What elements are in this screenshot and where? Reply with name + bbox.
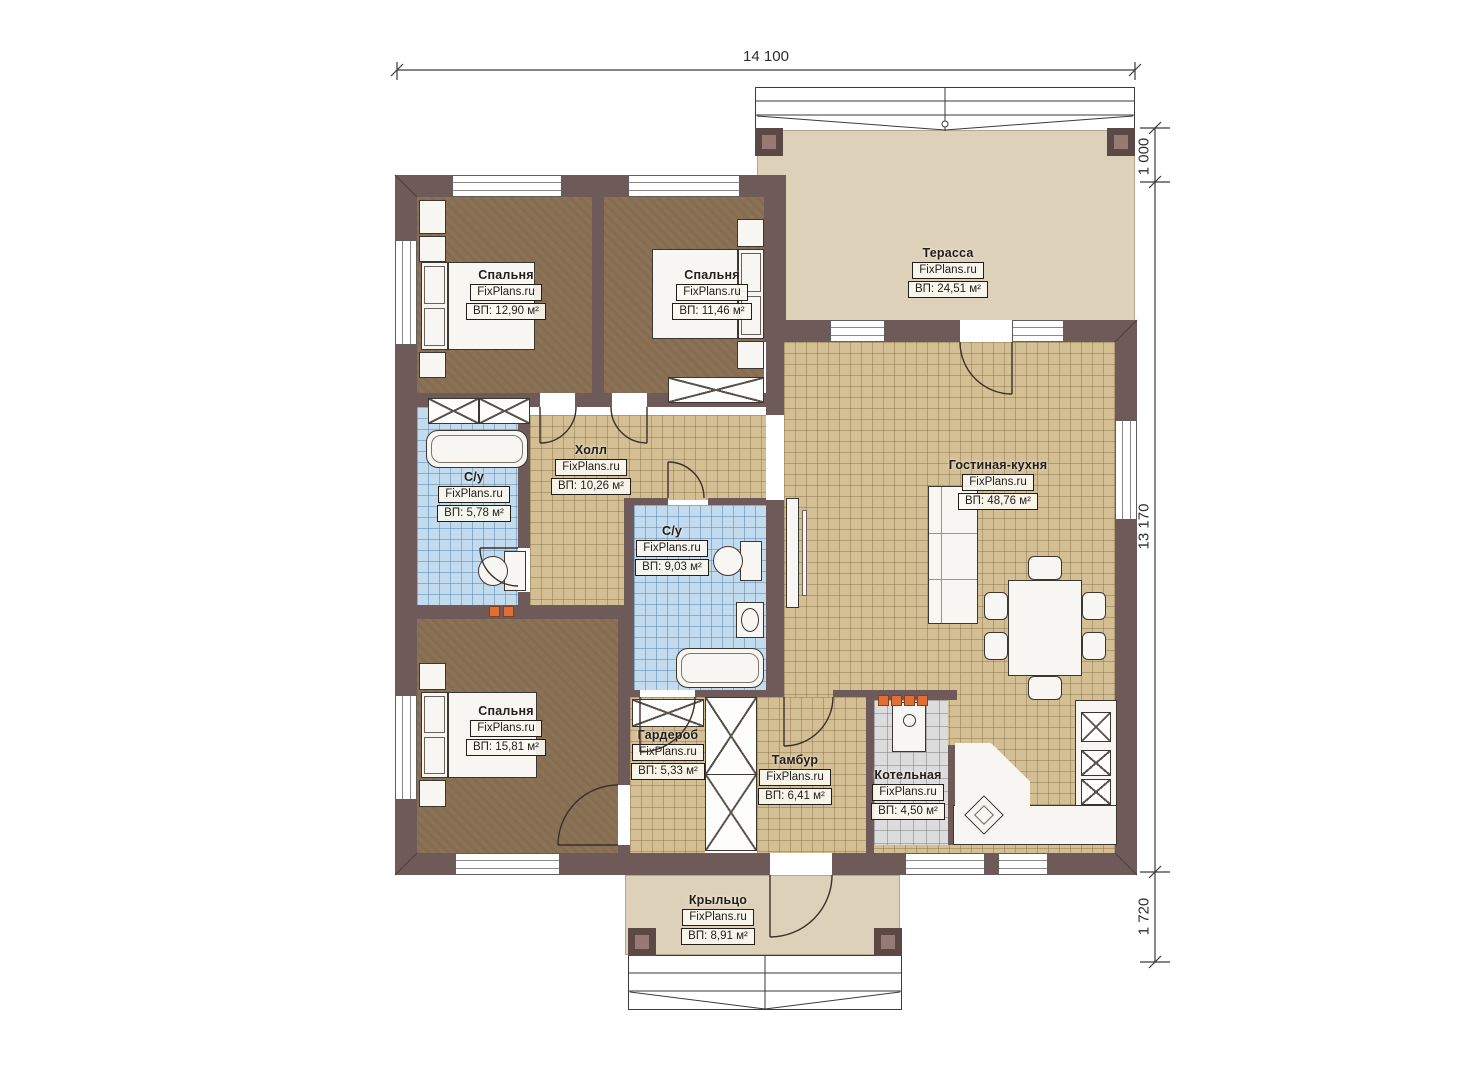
room-label-bedroom-top-left: Спальня FixPlans.ru ВП: 12,90 м²	[448, 268, 564, 320]
pillow	[424, 696, 445, 733]
brand-watermark: FixPlans.ru	[759, 769, 831, 786]
sink-basin	[741, 608, 759, 632]
nightstand	[419, 663, 446, 690]
room-name: Тамбур	[737, 753, 853, 767]
room-name: Спальня	[448, 704, 564, 718]
window	[998, 853, 1048, 875]
room-area: ВП: 5,33 м²	[631, 763, 705, 780]
brand-watermark: FixPlans.ru	[632, 744, 704, 761]
room-name: С/у	[416, 470, 532, 484]
boiler	[892, 702, 926, 752]
chair	[984, 632, 1008, 660]
room-label-bedroom-top-right: Спальня FixPlans.ru ВП: 11,46 м²	[654, 268, 770, 320]
radiator	[489, 606, 500, 617]
radiator	[891, 695, 902, 706]
room-name: Гостиная-кухня	[940, 458, 1056, 472]
wall	[766, 342, 784, 415]
wall	[618, 845, 630, 853]
nightstand	[737, 341, 764, 369]
room-area: ВП: 8,91 м²	[681, 928, 755, 945]
brand-watermark: FixPlans.ru	[555, 459, 627, 476]
boiler-burner	[903, 714, 916, 727]
tv-console	[786, 498, 799, 608]
bathtub	[426, 430, 528, 468]
room-label-bathroom-center: С/у FixPlans.ru ВП: 9,03 м²	[614, 524, 730, 576]
wall	[592, 197, 604, 393]
oven	[1081, 779, 1111, 805]
chair	[1028, 556, 1062, 580]
wall	[518, 592, 530, 605]
room-label-hall: Холл FixPlans.ru ВП: 10,26 м²	[533, 443, 649, 495]
nightstand	[419, 780, 446, 807]
floor-plan: Спальня FixPlans.ru ВП: 12,90 м² Спальня…	[0, 0, 1473, 1080]
hall-floor-lower	[530, 500, 624, 605]
window	[628, 175, 740, 197]
room-name: Спальня	[448, 268, 564, 282]
room-label-living-kitchen: Гостиная-кухня FixPlans.ru ВП: 48,76 м²	[940, 458, 1056, 510]
nightstand	[419, 236, 446, 262]
radiator	[503, 606, 514, 617]
chair	[1082, 632, 1106, 660]
terrace-canopy	[755, 87, 1135, 132]
dimension-right-lower: 1 720	[1136, 887, 1153, 947]
toilet-tank	[740, 541, 762, 581]
closet	[419, 200, 446, 234]
room-name: Котельная	[850, 768, 966, 782]
wall	[575, 393, 612, 407]
nightstand	[737, 219, 764, 247]
radiator	[917, 695, 928, 706]
window	[905, 853, 985, 875]
closet	[479, 398, 530, 424]
column-post	[874, 928, 902, 956]
bathtub	[676, 648, 764, 688]
bathtub-inner	[431, 435, 523, 463]
wardrobe-cabinet	[668, 377, 764, 403]
room-label-terrace: Терасса FixPlans.ru ВП: 24,51 м²	[890, 246, 1006, 298]
room-label-wardrobe: Гардероб FixPlans.ru ВП: 5,33 м²	[610, 728, 726, 780]
window	[452, 175, 562, 197]
pillow	[424, 737, 445, 774]
terrace-door-opening	[960, 320, 1012, 342]
wall	[764, 320, 1137, 342]
nightstand	[419, 352, 446, 378]
wall	[417, 605, 630, 619]
brand-watermark: FixPlans.ru	[636, 540, 708, 557]
kitchen-appliance	[1081, 712, 1111, 742]
window	[455, 853, 560, 875]
room-area: ВП: 48,76 м²	[958, 493, 1038, 510]
pillow	[424, 266, 445, 304]
wall	[708, 498, 766, 505]
room-area: ВП: 10,26 м²	[551, 478, 631, 495]
dimension-right-upper: 1 000	[1136, 127, 1153, 187]
room-name: Гардероб	[610, 728, 726, 742]
column-post	[628, 928, 656, 956]
brand-watermark: FixPlans.ru	[962, 474, 1034, 491]
room-name: Спальня	[654, 268, 770, 282]
room-name: Крыльцо	[660, 893, 776, 907]
window	[395, 695, 417, 800]
room-area: ВП: 15,81 м²	[466, 739, 546, 756]
room-label-boiler-room: Котельная FixPlans.ru ВП: 4,50 м²	[850, 768, 966, 820]
wall	[833, 690, 866, 697]
chair	[1028, 676, 1062, 700]
dimension-width: 14 100	[716, 48, 816, 65]
brand-watermark: FixPlans.ru	[676, 284, 748, 301]
wall	[624, 498, 668, 505]
stove	[1081, 750, 1111, 776]
room-area: ВП: 4,50 м²	[871, 803, 945, 820]
wall	[695, 690, 784, 697]
brand-watermark: FixPlans.ru	[912, 262, 984, 279]
window	[830, 320, 885, 342]
room-area: ВП: 11,46 м²	[672, 303, 751, 320]
brand-watermark: FixPlans.ru	[438, 486, 510, 503]
room-label-vestibule: Тамбур FixPlans.ru ВП: 6,41 м²	[737, 753, 853, 805]
window	[1012, 320, 1064, 342]
chair	[1082, 592, 1106, 620]
room-area: ВП: 5,78 м²	[437, 505, 511, 522]
closet	[428, 398, 479, 424]
room-label-porch: Крыльцо FixPlans.ru ВП: 8,91 м²	[660, 893, 776, 945]
room-label-bedroom-bottom: Спальня FixPlans.ru ВП: 15,81 м²	[448, 704, 564, 756]
shelf-unit	[632, 699, 704, 727]
room-area: ВП: 6,41 м²	[758, 788, 832, 805]
brand-watermark: FixPlans.ru	[470, 720, 542, 737]
room-area: ВП: 24,51 м²	[908, 281, 988, 298]
dining-table	[1008, 580, 1082, 676]
brand-watermark: FixPlans.ru	[872, 784, 944, 801]
room-name: Терасса	[890, 246, 1006, 260]
column-post	[755, 128, 783, 156]
window	[1115, 420, 1137, 520]
radiator	[904, 695, 915, 706]
room-area: ВП: 12,90 м²	[466, 303, 546, 320]
pillow	[424, 308, 445, 346]
room-label-bathroom-left: С/у FixPlans.ru ВП: 5,78 м²	[416, 470, 532, 522]
tv-panel	[802, 510, 807, 596]
brand-watermark: FixPlans.ru	[470, 284, 542, 301]
room-area: ВП: 9,03 м²	[635, 559, 709, 576]
room-name: Холл	[533, 443, 649, 457]
room-name: С/у	[614, 524, 730, 538]
wall	[766, 500, 784, 690]
column-post	[1107, 128, 1135, 156]
window	[395, 240, 417, 345]
radiator	[878, 695, 889, 706]
chair	[984, 592, 1008, 620]
dimension-right-main: 13 170	[1136, 494, 1153, 560]
toilet-bowl	[478, 556, 508, 586]
bathtub-inner	[681, 653, 759, 683]
brand-watermark: FixPlans.ru	[682, 909, 754, 926]
entrance-door-opening	[770, 853, 832, 875]
porch-canopy	[628, 955, 902, 1010]
wall	[1115, 320, 1137, 875]
